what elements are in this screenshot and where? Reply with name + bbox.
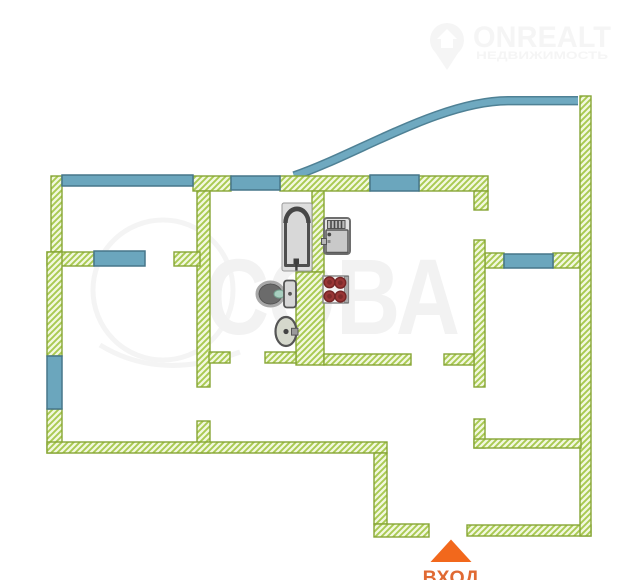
svg-text:ВХОД: ВХОД [423,567,480,580]
svg-text:НЕДВИЖИМОСТЬ: НЕДВИЖИМОСТЬ [476,50,608,62]
